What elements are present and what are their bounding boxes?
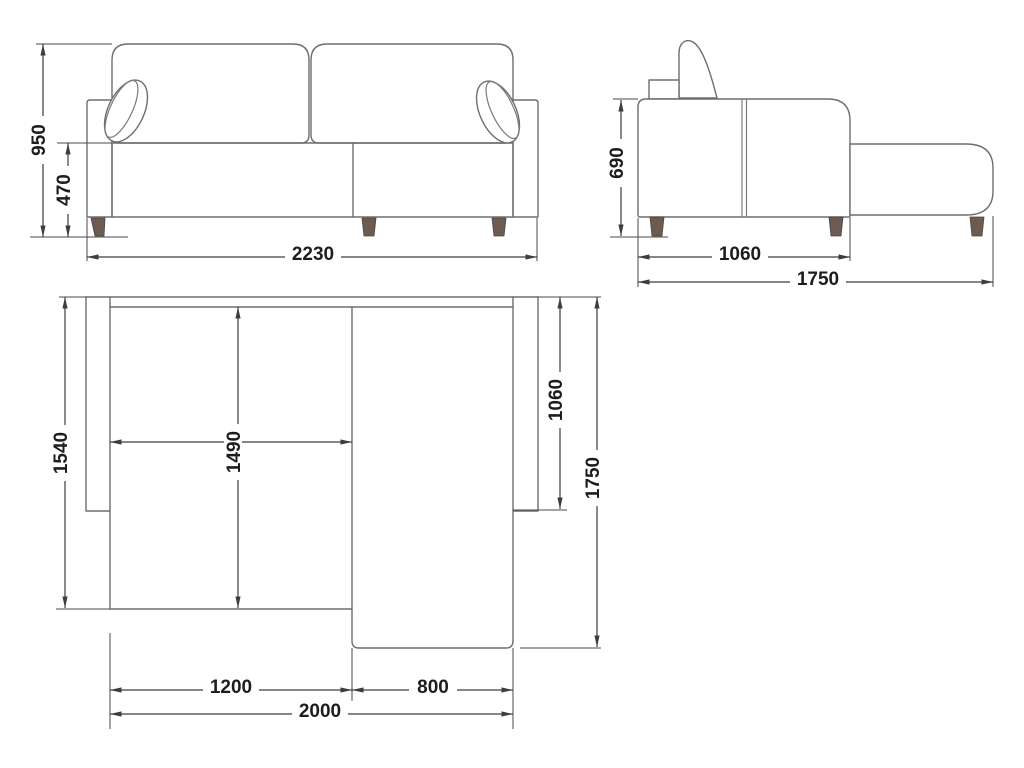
plan-right-depth-label-group: 1060: [546, 372, 567, 428]
front-leg-left: [91, 218, 105, 236]
sofa-dimension-drawing: 950 470 2230 690: [0, 0, 1024, 768]
plan-armrest-left: [86, 297, 110, 511]
dim-label-side-body-depth: 1060: [719, 244, 761, 265]
dim-label-plan-chaise-width: 800: [417, 677, 449, 698]
side-body: [638, 99, 850, 217]
side-leg-middle: [829, 217, 843, 236]
side-backrest-pillow: [679, 41, 717, 98]
dim-label-side-height: 690: [607, 147, 628, 179]
plan-chaise-divider: [352, 307, 359, 648]
plan-chaise-width-label-group: 800: [409, 677, 457, 698]
dim-label-plan-total-width: 2000: [299, 701, 341, 722]
front-seat-height-label-group: 470: [54, 166, 75, 214]
dim-label-front-width: 2230: [292, 244, 334, 265]
front-seat-base: [112, 143, 513, 217]
dim-label-plan-back-depth: 1540: [51, 432, 72, 474]
side-leg-back: [970, 217, 984, 236]
plan-armrest-right: [513, 297, 538, 511]
technical-drawing-canvas: 950 470 2230 690: [0, 0, 1024, 768]
dim-label-plan-inner-depth: 1490: [224, 431, 245, 473]
dim-label-front-height: 950: [29, 124, 50, 156]
dim-label-plan-total-depth: 1750: [583, 457, 604, 499]
front-width-label-group: 2230: [285, 244, 341, 265]
plan-total-depth-label-group: 1750: [583, 450, 604, 506]
plan-extension-lines: [56, 297, 601, 729]
side-leg-front: [650, 217, 664, 236]
side-height-label-group: 690: [607, 139, 628, 187]
front-leg-middle: [362, 218, 376, 236]
plan-inner-depth-label-group: 1490: [224, 424, 245, 480]
dim-label-front-seat-height: 470: [54, 174, 75, 206]
front-leg-right: [492, 218, 506, 236]
side-view: 690 1060 1750: [607, 41, 993, 290]
front-height-label-group: 950: [29, 116, 50, 164]
plan-total-width-label-group: 2000: [292, 701, 348, 722]
plan-chaise-front-edge: [359, 641, 513, 648]
side-headrest-block: [649, 80, 679, 99]
dim-label-plan-left-width: 1200: [210, 677, 252, 698]
dim-label-side-total-depth: 1750: [797, 269, 839, 290]
top-view: 1540 1490 1060 1750 1200 800 2000: [51, 297, 604, 729]
dim-label-plan-right-depth: 1060: [546, 379, 567, 421]
side-chaise: [850, 144, 993, 215]
plan-left-width-label-group: 1200: [203, 677, 259, 698]
front-view: 950 470 2230: [29, 44, 538, 265]
plan-back-depth-label-group: 1540: [51, 425, 72, 481]
side-total-depth-label-group: 1750: [790, 269, 846, 290]
side-body-depth-label-group: 1060: [712, 244, 768, 265]
